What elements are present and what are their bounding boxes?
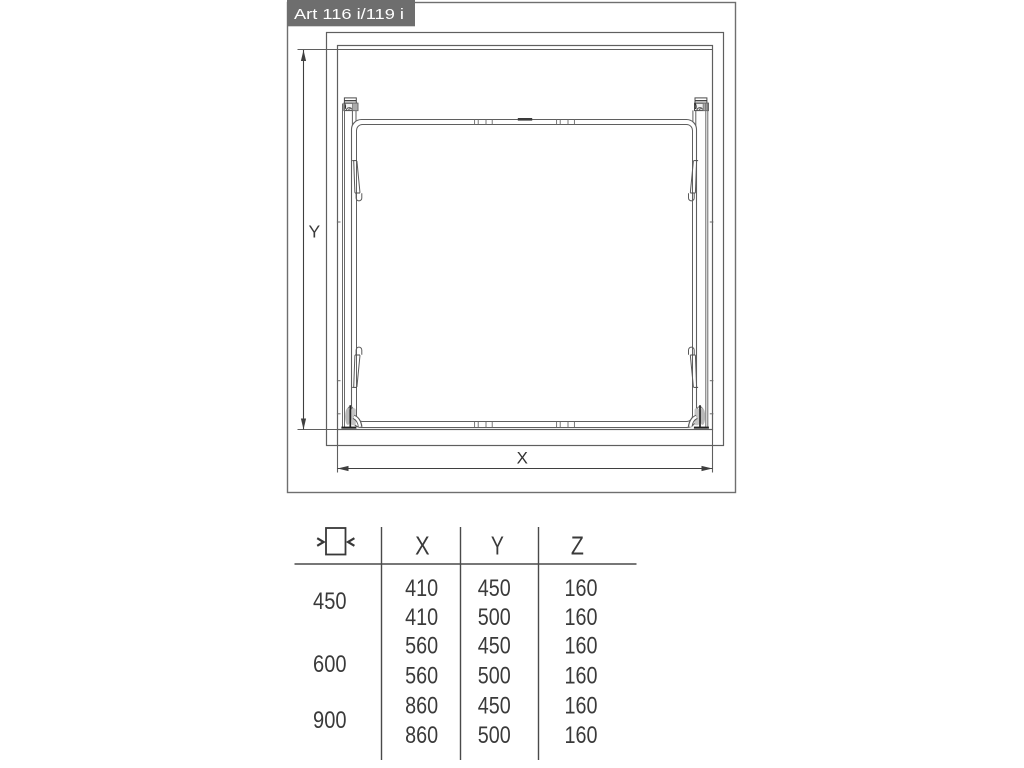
svg-text:Art 116 i/119 i: Art 116 i/119 i bbox=[294, 6, 404, 23]
svg-text:450: 450 bbox=[478, 692, 511, 719]
svg-text:160: 160 bbox=[565, 604, 598, 631]
svg-text:600: 600 bbox=[313, 651, 347, 678]
svg-text:900: 900 bbox=[313, 707, 347, 734]
svg-text:X: X bbox=[415, 532, 430, 560]
svg-text:500: 500 bbox=[478, 663, 511, 690]
svg-text:410: 410 bbox=[405, 575, 438, 602]
svg-text:860: 860 bbox=[405, 722, 438, 749]
svg-text:160: 160 bbox=[565, 633, 598, 660]
svg-text:500: 500 bbox=[478, 604, 511, 631]
svg-text:160: 160 bbox=[565, 722, 598, 749]
svg-text:Y: Y bbox=[491, 532, 504, 560]
svg-text:450: 450 bbox=[313, 588, 347, 615]
svg-text:X: X bbox=[517, 448, 528, 467]
svg-text:Z: Z bbox=[571, 532, 584, 560]
svg-text:500: 500 bbox=[478, 722, 511, 749]
svg-text:410: 410 bbox=[405, 604, 438, 631]
svg-text:450: 450 bbox=[478, 575, 511, 602]
svg-text:860: 860 bbox=[405, 692, 438, 719]
svg-text:560: 560 bbox=[405, 663, 438, 690]
svg-text:160: 160 bbox=[565, 692, 598, 719]
svg-text:450: 450 bbox=[478, 633, 511, 660]
svg-text:Y: Y bbox=[308, 222, 320, 242]
svg-text:160: 160 bbox=[565, 575, 598, 602]
svg-text:560: 560 bbox=[405, 633, 438, 660]
svg-text:160: 160 bbox=[565, 663, 598, 690]
